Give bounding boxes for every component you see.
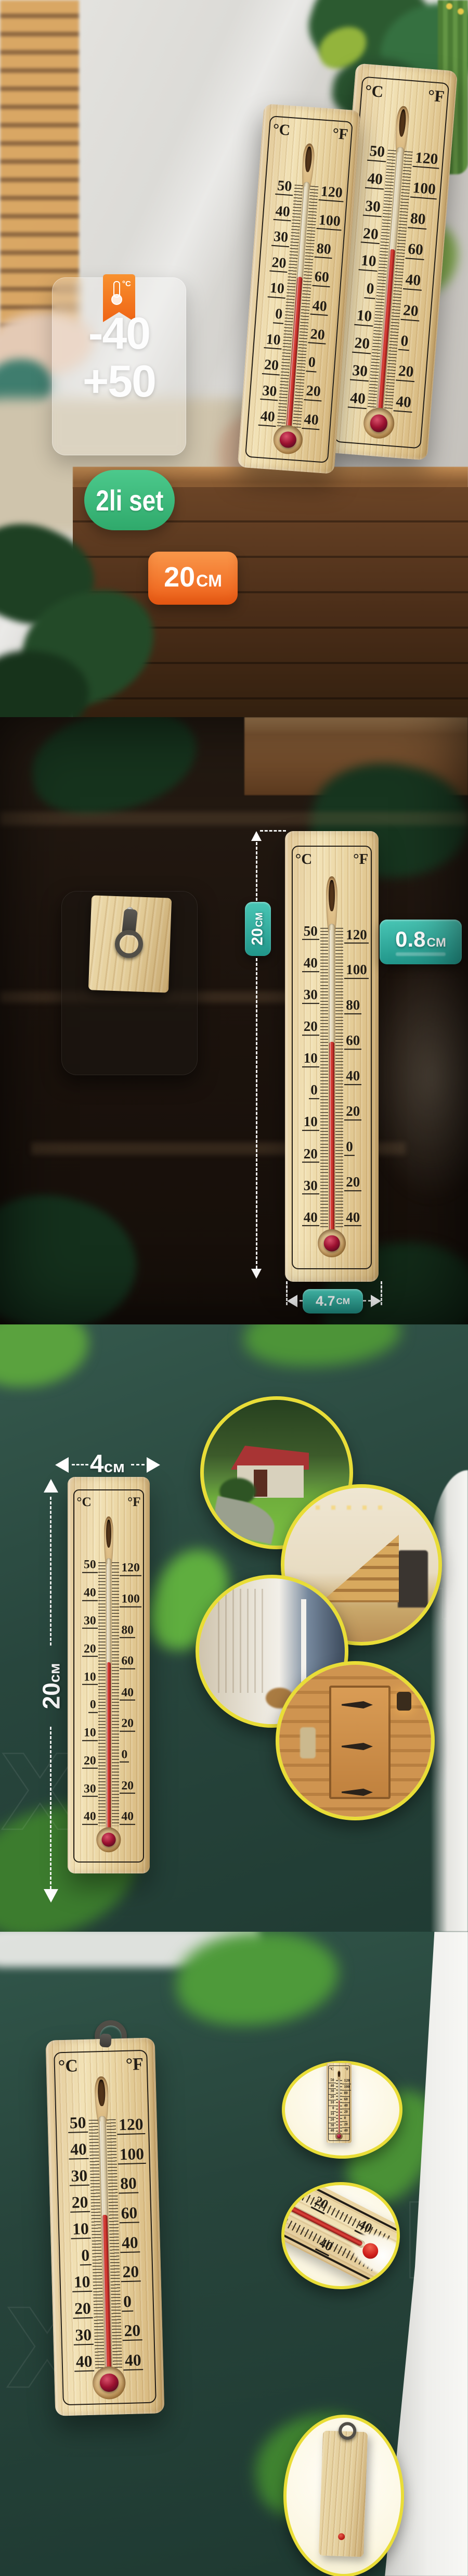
fahrenheit-scale-label: 80 [408, 211, 428, 229]
fahrenheit-scale-label: 60 [313, 270, 331, 287]
celsius-unit: °C [329, 2067, 334, 2071]
back-hanging-ring [339, 2422, 357, 2440]
celsius-scale-label: 30 [271, 230, 290, 247]
green-leaf-blur [244, 1324, 400, 1366]
fahrenheit-scale-label: 40 [302, 413, 320, 430]
celsius-scale-label: 40 [348, 391, 368, 409]
height-unit: см [46, 1663, 63, 1683]
celsius-scale-label: 40 [69, 2141, 88, 2160]
fahrenheit-scale-label: 40 [403, 273, 423, 291]
celsius-scale-label: 40 [365, 171, 385, 189]
detail-oval-back-view [283, 2415, 404, 2576]
fahrenheit-scale-label: 20 [122, 2323, 142, 2341]
height-dash-bottom [50, 1727, 51, 1889]
fahrenheit-scale-label: 100 [120, 1593, 141, 1608]
bulb [100, 2373, 119, 2392]
celsius-icon-label: °C [122, 279, 131, 288]
width-dash [131, 1464, 145, 1465]
fahrenheit-scale-label: 20 [121, 2264, 140, 2282]
celsius-scale-label: 40 [258, 410, 277, 427]
range-min: -40 [53, 311, 186, 356]
celsius-scale-label: 50 [82, 1559, 98, 1573]
fahrenheit-scale-label: 120 [413, 150, 440, 169]
celsius-scale-label: 30 [329, 2089, 335, 2095]
fahrenheit-scale-label: 20 [304, 384, 322, 401]
fahrenheit-scale-label: 40 [120, 2235, 140, 2253]
fahrenheit-scale-label: 40 [120, 1687, 135, 1701]
length-badge: 20 CM [148, 552, 238, 605]
celsius-scale-label: 10 [354, 309, 374, 327]
fahrenheit-scale-label: 60 [119, 2205, 139, 2223]
usage-photo-sauna [276, 1661, 435, 1820]
celsius-scale-label: 10 [82, 1727, 98, 1741]
celsius-scale-label: 0 [364, 282, 376, 299]
celsius-scale-label: 40 [74, 2354, 94, 2372]
celsius-scale-label: 50 [68, 2115, 88, 2133]
capillary-tube [338, 2080, 340, 2136]
celsius-scale-label: 0 [88, 1699, 98, 1713]
celsius-scale-label: 30 [363, 199, 383, 217]
celsius-scale-label: 30 [329, 2124, 335, 2129]
photo-lantern [397, 1692, 411, 1711]
width-value: 4 [90, 1450, 104, 1478]
fahrenheit-tick-marks [112, 1562, 119, 1826]
celsius-scale-label: 10 [359, 254, 379, 272]
celsius-scale-label: 20 [329, 2095, 335, 2100]
fahrenheit-scale-label: 120 [342, 2079, 351, 2084]
fahrenheit-scale-label: 40 [394, 394, 413, 413]
fahrenheit-scale-label: 40 [342, 2129, 349, 2135]
set-badge: 2li set [84, 470, 175, 530]
length-value: 20 [164, 563, 195, 591]
celsius-scale-label: 20 [262, 358, 281, 375]
celsius-scale-label: 20 [329, 2118, 335, 2123]
panel-dimensions: °C°F504030201001020304012010080604020020… [0, 717, 468, 1324]
thermometer-product: °C°F504030201001020304012010080604020020… [46, 2037, 165, 2416]
detail-oval-bulb-closeup: 20 40 30 40 [281, 2182, 400, 2289]
celsius-scale-label: 30 [82, 1615, 98, 1629]
fahrenheit-scale-label: 40 [123, 2352, 143, 2370]
celsius-scale-label: 30 [73, 2327, 93, 2345]
fahrenheit-scale-label: 0 [306, 356, 318, 373]
celsius-tick-marks [98, 1562, 105, 1826]
celsius-scale-label: 50 [329, 2078, 335, 2084]
fahrenheit-scale-label: 100 [118, 2146, 146, 2164]
fahrenheit-scale-label: 20 [401, 303, 421, 322]
photo-ceiling-lights [316, 1506, 388, 1510]
celsius-unit: °C [365, 81, 384, 101]
celsius-scale-label: 10 [268, 282, 287, 299]
height-dash-top [50, 1497, 51, 1646]
celsius-scale-label: 10 [71, 2221, 90, 2239]
fahrenheit-scale-label: 80 [119, 2175, 138, 2194]
fahrenheit-scale-label: 40 [120, 1811, 135, 1825]
celsius-scale-label: 40 [274, 205, 292, 222]
fahrenheit-unit: °F [345, 2067, 349, 2071]
celsius-scale-label: 20 [70, 2195, 90, 2213]
mini-thermometer: °C°F504030201001020304012010080604020020… [327, 2063, 352, 2143]
fahrenheit-scale-label: 20 [120, 1718, 135, 1732]
height-arrow-up [44, 1479, 58, 1493]
celsius-scale-label: 10 [72, 2274, 92, 2292]
fahrenheit-unit: °F [127, 1495, 141, 1510]
hanging-slot [106, 1520, 111, 1547]
thermometer-product: °C°F504030201001020304012010080604020020… [68, 1477, 150, 1873]
fahrenheit-scale-label: 20 [120, 1780, 135, 1794]
ring-strap [99, 2033, 112, 2047]
celsius-scale-label: 0 [273, 308, 284, 324]
fahrenheit-scale-label: 60 [342, 2098, 349, 2103]
panel-hero: °C°F504030201001020304012010080604020020… [0, 0, 468, 717]
celsius-scale-label: 20 [269, 256, 288, 273]
fahrenheit-scale-label: 60 [406, 242, 425, 260]
green-leaf-blur [177, 1932, 338, 2025]
celsius-scale-label: 30 [350, 364, 370, 382]
celsius-scale-label: 0 [331, 2107, 336, 2112]
height-arrow-down [44, 1889, 58, 1903]
fahrenheit-scale-label: 120 [117, 2116, 145, 2135]
celsius-scale-label: 20 [361, 226, 381, 245]
fahrenheit-scale-label: 100 [410, 181, 437, 200]
photo-house-door [254, 1470, 267, 1497]
length-unit: CM [196, 571, 222, 591]
fahrenheit-scale-label: 0 [342, 2116, 347, 2122]
scale-units: °C°F [76, 1495, 140, 1510]
celsius-scale-label: 40 [82, 1811, 98, 1825]
celsius-scale-label: 30 [260, 384, 279, 401]
celsius-scale-label: 20 [82, 1643, 98, 1657]
thermometer-product-listing: °C°F504030201001020304012010080604020020… [0, 0, 468, 2576]
cactus-flower [458, 8, 464, 15]
fahrenheit-scale-label: 20 [342, 2123, 349, 2128]
celsius-scale-label: 10 [329, 2112, 335, 2118]
celsius-unit: °C [272, 120, 291, 139]
fahrenheit-scale-label: 100 [342, 2085, 351, 2090]
height-value: 20 [37, 1682, 65, 1709]
fahrenheit-scale-label: 0 [120, 1749, 129, 1763]
fahrenheit-scale-label: 0 [398, 334, 410, 351]
fahrenheit-scale-label: 0 [122, 2293, 134, 2311]
celsius-scale-label: 30 [82, 1783, 98, 1797]
photo-towels [300, 1727, 316, 1758]
celsius-unit: °C [58, 2056, 79, 2076]
green-leaf-blur [0, 1324, 88, 1387]
width-unit: см [104, 1458, 125, 1476]
celsius-scale-label: 20 [82, 1755, 98, 1769]
width-arrow-left [55, 1457, 69, 1473]
photo-panel-lines [218, 1589, 265, 1693]
fahrenheit-scale-label: 120 [120, 1562, 141, 1576]
back-board [319, 2431, 368, 2557]
celsius-scale-label: 10 [82, 1671, 98, 1685]
cactus-flower [446, 3, 452, 9]
bulb [102, 1833, 116, 1847]
liquid-column [107, 1662, 111, 1845]
range-max: +50 [53, 359, 186, 404]
celsius-scale-label: 40 [329, 2129, 335, 2135]
fahrenheit-unit: °F [332, 125, 348, 144]
width-label: 4 см [90, 1450, 125, 1478]
celsius-scale-label: 50 [367, 144, 387, 162]
back-bulb-dot [338, 2533, 345, 2540]
celsius-scale-label: 40 [82, 1587, 98, 1601]
celsius-scale-label: 40 [329, 2084, 335, 2089]
celsius-scale-label: 20 [352, 336, 372, 354]
fahrenheit-scale-label: 20 [308, 327, 327, 345]
fahrenheit-scale-label: 20 [342, 2110, 349, 2115]
celsius-scale-label: 20 [73, 2301, 93, 2319]
fahrenheit-scale-label: 80 [342, 2092, 349, 2097]
liquid-column [339, 2100, 340, 2137]
fahrenheit-scale-label: 40 [342, 2104, 349, 2109]
fahrenheit-unit: °F [427, 86, 445, 106]
temperature-range-card: °C -40 +50 [52, 277, 186, 455]
photo-doorway [398, 1550, 428, 1608]
capillary-tube [106, 1558, 112, 1840]
width-dash [72, 1464, 88, 1465]
celsius-scale-label: 10 [329, 2101, 335, 2106]
thermometer-icon-bulb [111, 294, 122, 305]
celsius-scale-label: 0 [80, 2248, 92, 2265]
celsius-scale-label: 30 [69, 2168, 89, 2186]
panel-usage: Н Х 4 см 20 см °C°F504030201001020304012… [0, 1324, 468, 1932]
fahrenheit-tick-marks [340, 2080, 342, 2133]
hanging-slot [338, 2072, 340, 2077]
closeup-board: 20 40 30 40 [284, 2185, 397, 2286]
fahrenheit-scale-label: 120 [319, 185, 345, 202]
celsius-scale-label: 10 [264, 333, 282, 350]
bulb-closeup: 20 40 30 40 [284, 2185, 397, 2286]
fahrenheit-scale-label: 100 [317, 213, 343, 231]
width-arrow-right [147, 1457, 160, 1473]
vignette [0, 717, 468, 1324]
celsius-unit: °C [76, 1495, 91, 1510]
panel-details: Н Х °C°F50403020100102030401201008060402… [0, 1932, 468, 2576]
fahrenheit-unit: °F [125, 2055, 144, 2075]
scale-units: °C°F [58, 2055, 144, 2076]
fahrenheit-scale-label: 60 [120, 1655, 135, 1669]
celsius-scale-label: 50 [275, 178, 294, 196]
fahrenheit-scale-label: 80 [120, 1624, 135, 1638]
fahrenheit-scale-label: 80 [315, 241, 333, 259]
set-badge-label: 2li set [96, 483, 163, 517]
fahrenheit-scale-label: 20 [396, 364, 416, 382]
fahrenheit-scale-label: 40 [310, 299, 329, 316]
